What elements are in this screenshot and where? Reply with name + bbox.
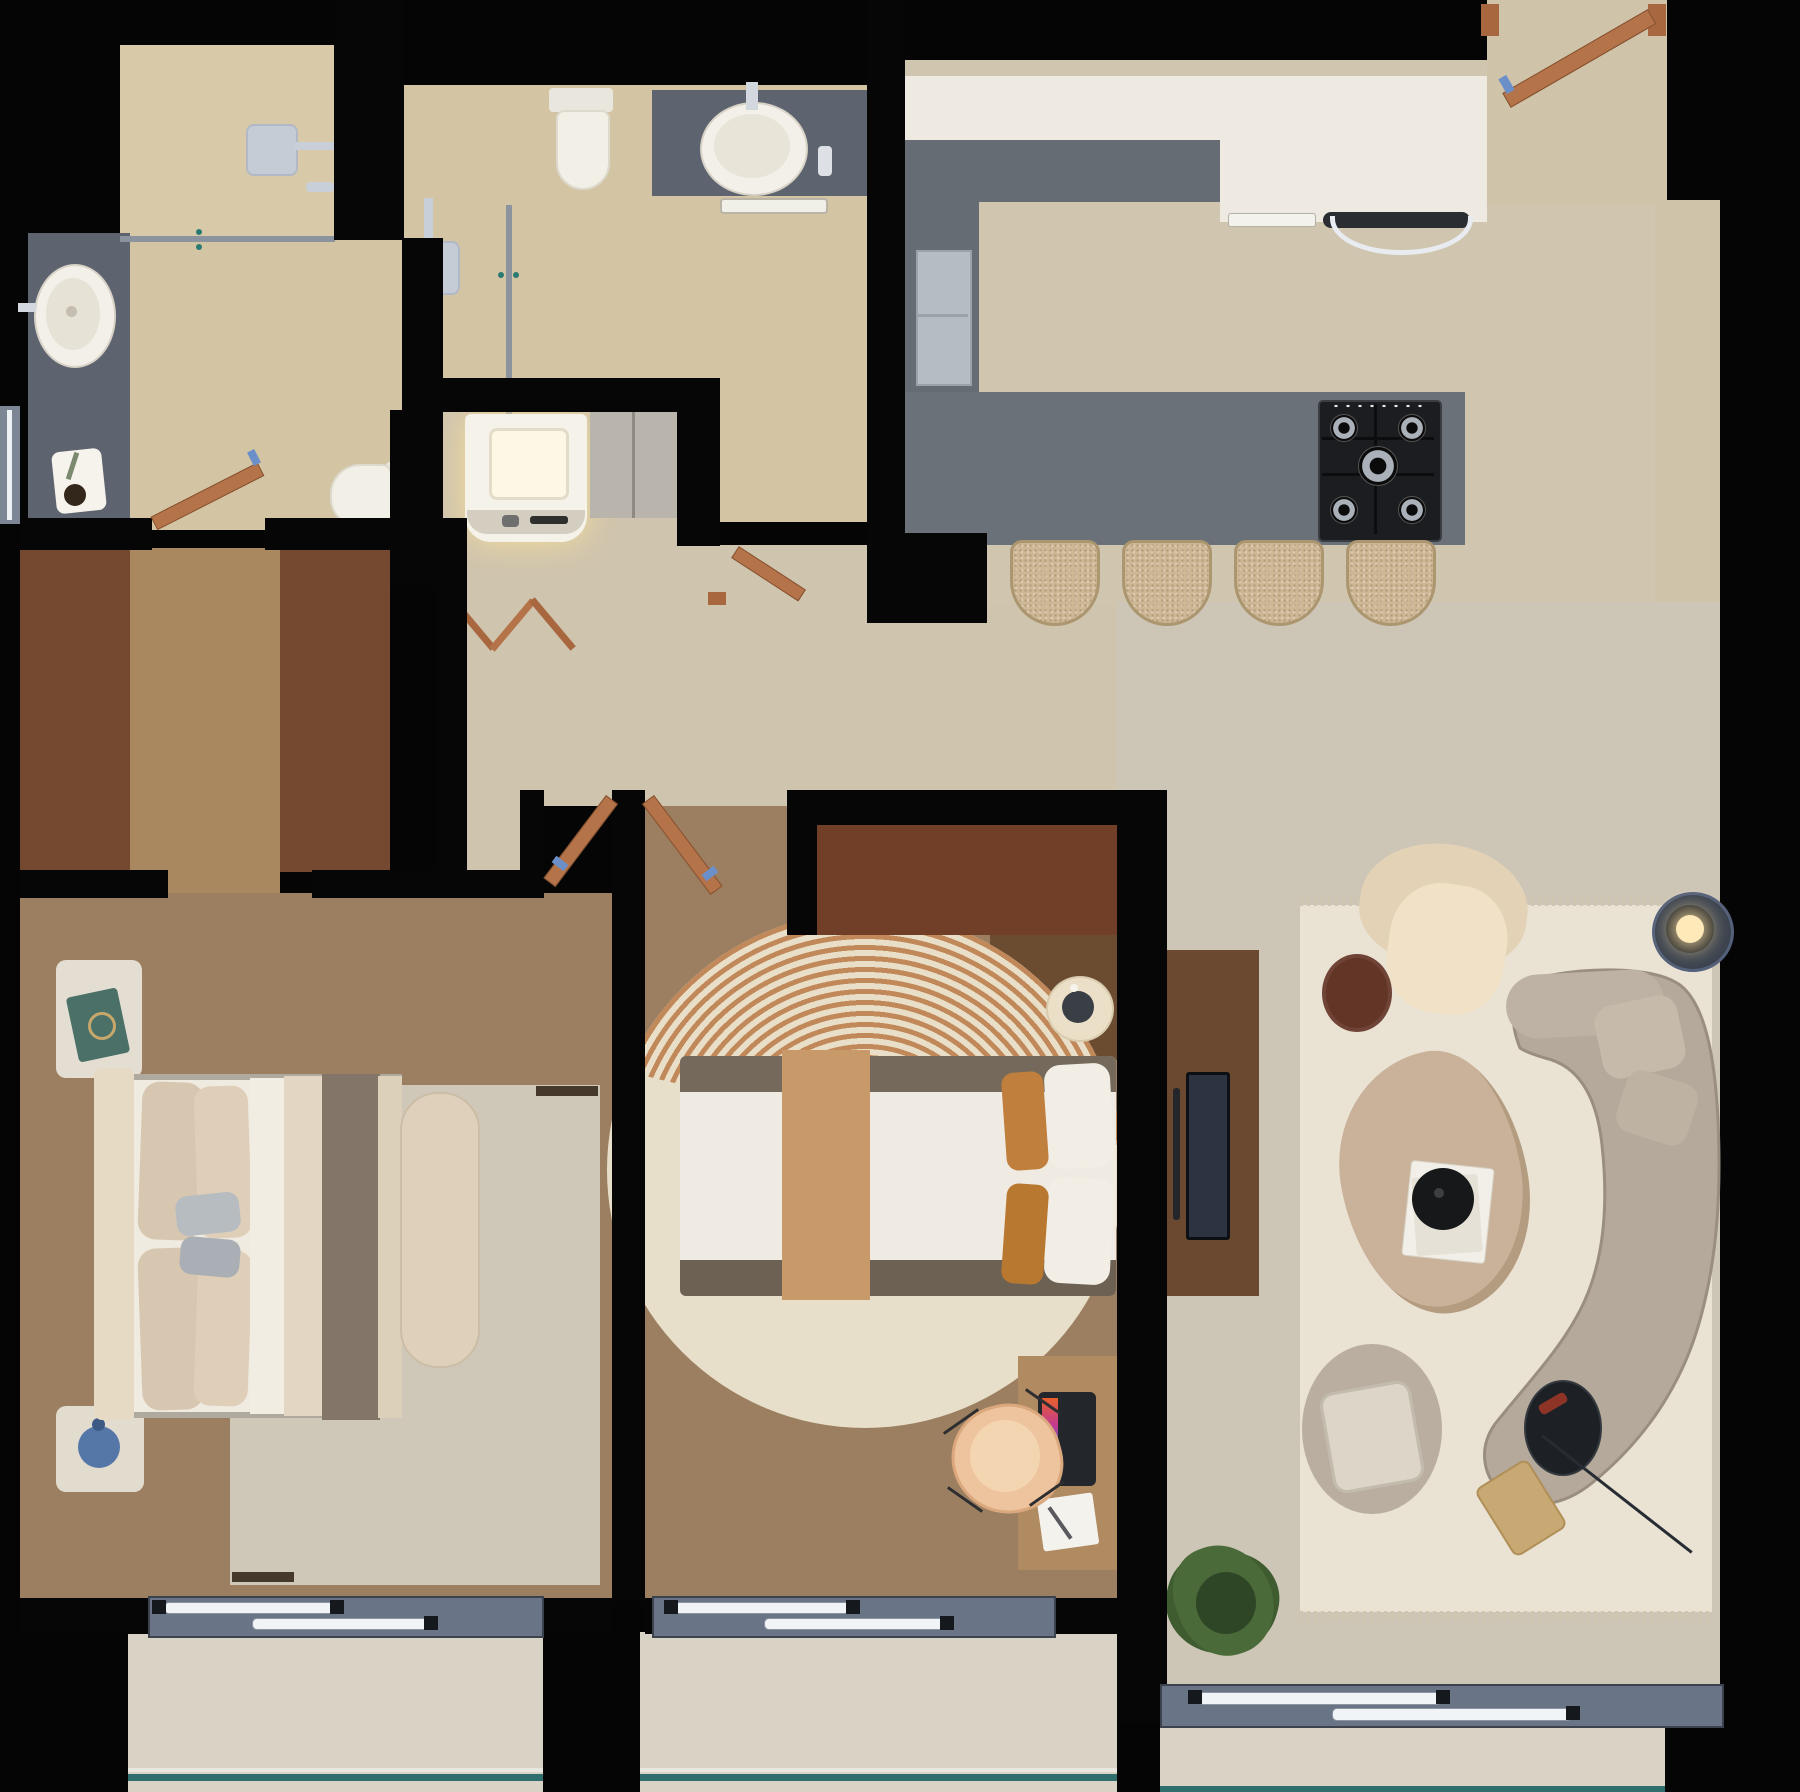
balcony1-glass	[128, 1774, 543, 1781]
kitchen-counter-right	[1220, 140, 1487, 222]
bed2-pillow-orange-2	[1001, 1183, 1050, 1286]
bedroom1-rug-corner-mark	[536, 1086, 598, 1096]
bathroom1-soap-dish	[64, 484, 86, 506]
balcony3-floor	[1160, 1722, 1665, 1792]
washing-machine-knob	[502, 515, 519, 527]
wall-kitchen-hall	[867, 533, 987, 623]
closet-walkway-floor	[130, 548, 280, 898]
wall-bedrooms-divider	[612, 790, 645, 1602]
desk-papers	[1037, 1492, 1100, 1551]
wall-bed2-north	[810, 790, 1117, 825]
bar-stool-2	[1122, 540, 1212, 626]
bedroom1-slider-cap2	[330, 1600, 344, 1614]
coffee-table-bowl-dot	[1434, 1188, 1444, 1198]
wall-bath2-sw	[402, 238, 443, 414]
nightstand-vase	[78, 1426, 120, 1468]
washing-machine-slot	[530, 516, 568, 524]
bed2-pillow-orange-1	[1001, 1071, 1050, 1172]
wall-bath2-kitchen	[867, 0, 905, 545]
bathroom2-faucet	[746, 82, 758, 110]
bedroom2-chair-seat	[970, 1420, 1040, 1492]
bathroom2-toilet-bowl	[556, 110, 610, 190]
bedroom2-slider-cap3	[940, 1616, 954, 1630]
kitchen-vent	[1228, 213, 1316, 227]
doorway-bed2-threshold	[645, 790, 787, 806]
wall-bed1-jog	[520, 790, 544, 898]
bedroom1-slider-pane2	[252, 1618, 430, 1630]
living-slider-cap2	[1436, 1690, 1450, 1704]
bathroom1-sink-drain	[66, 306, 77, 317]
balcony2-glass	[640, 1774, 1117, 1781]
bedroom2-slider-cap2	[846, 1600, 860, 1614]
bathroom2-towel-rail	[720, 198, 828, 214]
wall-bath1-south-right	[265, 518, 437, 550]
cooktop-burner-center	[1358, 446, 1398, 486]
kitchen-prep-sink	[916, 250, 972, 386]
kitchen-prep-sink-divider	[916, 314, 968, 317]
pouf-throw	[1318, 1379, 1426, 1495]
cooktop-burner-3	[1330, 496, 1358, 524]
laundry-cabinet-divider	[632, 412, 635, 518]
living-slider-pane2	[1332, 1708, 1572, 1721]
bed1-headboard	[94, 1068, 134, 1420]
living-slider-cap3	[1566, 1706, 1580, 1720]
bedroom2-bedside-dot	[1070, 984, 1078, 992]
washing-machine-door	[489, 428, 569, 500]
bedroom1-door	[543, 795, 618, 887]
bedroom1-slider-cap1	[152, 1600, 166, 1614]
cooktop-knobs	[1330, 402, 1426, 410]
wall-niche-left	[390, 410, 443, 586]
living-side-table	[1322, 954, 1392, 1032]
bathroom1-glass-hinge-dot1	[196, 229, 202, 235]
wall-bed2-living	[1117, 790, 1167, 1686]
bedroom1-slider-pane1	[164, 1602, 336, 1614]
bed2-pillow-white-1	[1043, 1062, 1114, 1169]
hall-door-jamb	[708, 592, 726, 605]
bedroom2-slider-pane1	[672, 1602, 852, 1614]
bed2-pillow-white-2	[1043, 1176, 1114, 1285]
nightstand-book-ring	[88, 1012, 116, 1040]
bathroom2-toilet-tank	[549, 88, 613, 112]
balcony3-glass	[1160, 1786, 1665, 1792]
wall-bath1-south-left	[20, 518, 152, 550]
floor-plan	[0, 0, 1800, 1792]
cooktop-burner-2	[1398, 414, 1426, 442]
balcony1-rail-line	[128, 1768, 543, 1772]
bathroom1-window-glass	[7, 410, 12, 520]
bedroom1-rug-corner-mark2	[232, 1572, 294, 1582]
bathroom2-counter-item	[818, 146, 832, 176]
bedroom2-wardrobe	[817, 823, 1117, 935]
bathroom2-shower-arm	[424, 198, 433, 242]
cooktop-burner-1	[1330, 414, 1358, 442]
soundbar	[1173, 1088, 1180, 1220]
bathroom1-shower-head	[246, 124, 298, 176]
bar-stool-1	[1010, 540, 1100, 626]
bathroom2-glass-hinge-dot1	[498, 272, 504, 278]
living-slider-cap1	[1188, 1690, 1202, 1704]
bathroom1-hand-shower	[306, 182, 334, 192]
living-slider-pane1	[1198, 1692, 1442, 1705]
wall-shower-divide	[334, 0, 404, 240]
entry-door-jamb-left	[1481, 4, 1499, 36]
closet-wardrobe-left	[20, 550, 130, 872]
bathroom1-faucet	[18, 303, 36, 312]
kitchen-counter-top	[903, 76, 1487, 140]
hallway-floor-patch	[467, 790, 523, 874]
bar-stool-4	[1346, 540, 1436, 626]
bathroom1-shower-arm	[294, 142, 336, 150]
bedroom2-bedside-lamp	[1062, 991, 1094, 1023]
wall-bed1-north-right	[312, 870, 522, 898]
living-rug-fringe-bottom	[1300, 1611, 1712, 1621]
bathroom1-shower-glass	[120, 236, 335, 242]
plant-center	[1196, 1572, 1256, 1634]
bed1-bench	[400, 1092, 480, 1368]
wall-niche-right	[677, 400, 720, 546]
bathroom2-sink-basin	[714, 114, 790, 178]
bed1-throw-taupe	[322, 1074, 380, 1420]
tv	[1186, 1072, 1230, 1240]
floor-lamp-glow	[1676, 915, 1704, 943]
cooktop-burner-4	[1398, 496, 1426, 524]
bedroom1-slider-cap3	[424, 1616, 438, 1630]
bed1-cushion-gray-2	[178, 1235, 241, 1278]
wall-closet-east	[437, 518, 467, 898]
closet-wardrobe-right	[280, 550, 390, 872]
bed1-duvet-end	[378, 1076, 402, 1418]
east-hall-floor	[1655, 200, 1720, 605]
bed1-cushion-gray-1	[174, 1191, 242, 1237]
wall-bed1-north-left	[20, 870, 168, 898]
bed1-sheet-fold	[250, 1078, 286, 1414]
bedroom2-slider-pane2	[764, 1618, 946, 1630]
bed1-quilt	[284, 1076, 324, 1416]
bar-stool-3	[1234, 540, 1324, 626]
bathroom1-glass-hinge-dot2	[196, 244, 202, 250]
bed2-throw-checkered	[782, 1050, 870, 1300]
bedroom2-slider-cap1	[664, 1600, 678, 1614]
bathroom2-glass-hinge-dot2	[513, 272, 519, 278]
balcony2-rail-line	[640, 1768, 1117, 1772]
